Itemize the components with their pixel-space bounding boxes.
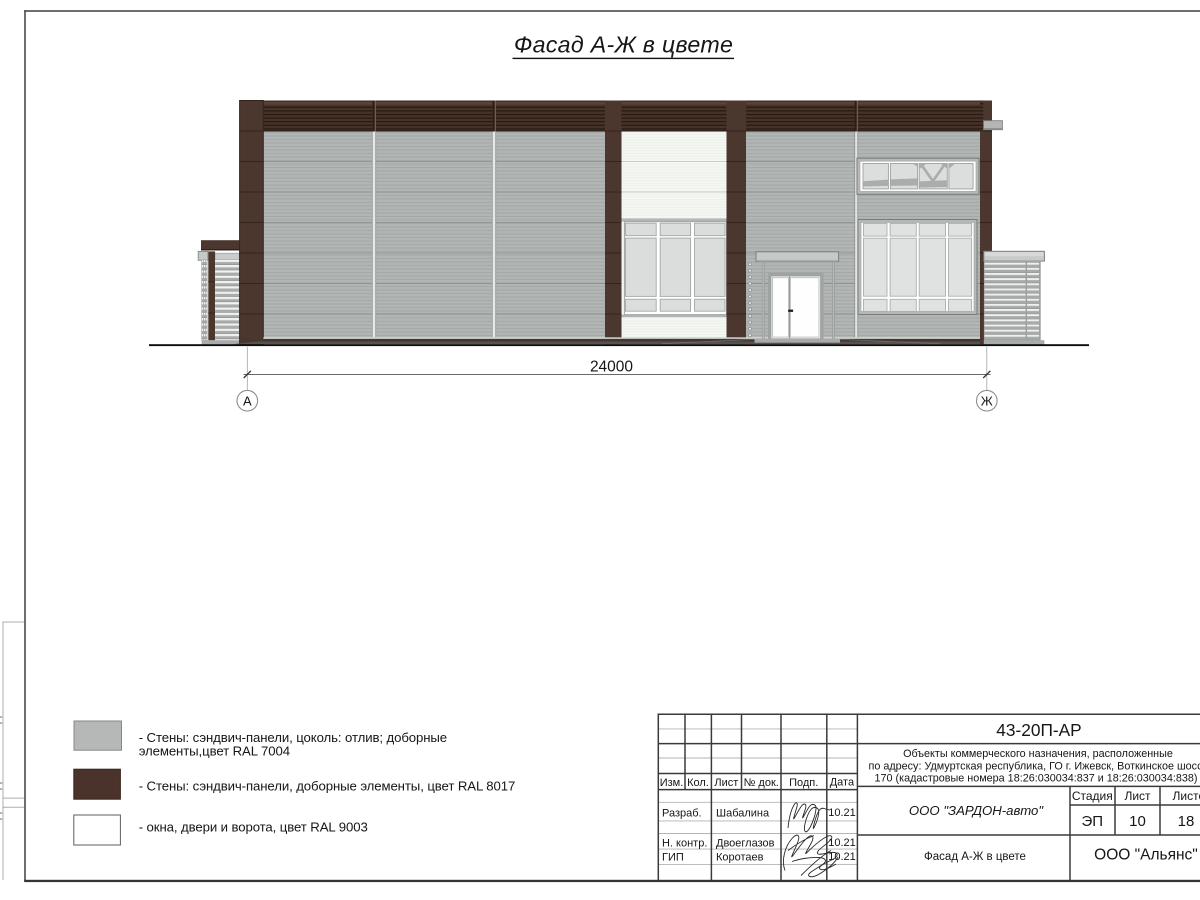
svg-text:Дата: Дата	[830, 777, 855, 789]
svg-text:- окна, двери и ворота, цвет R: - окна, двери и ворота, цвет RAL 9003	[139, 820, 368, 835]
svg-text:А: А	[243, 393, 252, 408]
svg-text:Фасад А-Ж в цвете: Фасад А-Ж в цвете	[924, 851, 1026, 863]
svg-text:43-20П-АР: 43-20П-АР	[996, 720, 1081, 740]
svg-text:элементы,цвет RAL 7004: элементы,цвет RAL 7004	[139, 744, 290, 759]
svg-text:Ж: Ж	[981, 393, 993, 408]
svg-text:ООО "ЗАРДОН-авто": ООО "ЗАРДОН-авто"	[909, 803, 1044, 818]
svg-text:ГИП: ГИП	[662, 852, 684, 864]
svg-text:ООО "Альянс": ООО "Альянс"	[1094, 847, 1198, 864]
svg-text:Изм.: Изм.	[660, 777, 684, 789]
svg-text:170 (кадастровые номера 18:26:: 170 (кадастровые номера 18:26:030034:837…	[875, 772, 1198, 784]
svg-text:Фасад А-Ж в цвете: Фасад А-Ж в цвете	[514, 32, 733, 58]
svg-text:Объекты коммерческого назначен: Объекты коммерческого назначения, распол…	[903, 748, 1173, 760]
svg-text:Шабалина: Шабалина	[716, 807, 770, 819]
svg-text:24000: 24000	[590, 359, 633, 376]
svg-text:№ док.: № док.	[744, 777, 779, 789]
svg-text:Разраб.: Разраб.	[662, 807, 702, 819]
svg-text:Кол.: Кол.	[687, 777, 709, 789]
svg-text:10.21: 10.21	[828, 807, 856, 819]
svg-text:10.21: 10.21	[828, 837, 856, 849]
svg-text:10.21: 10.21	[828, 851, 856, 863]
svg-text:Стадия: Стадия	[1072, 789, 1113, 803]
svg-text:- Стены: сэндвич-панели, добор: - Стены: сэндвич-панели, доборные элемен…	[139, 779, 516, 794]
svg-text:Лист: Лист	[714, 777, 738, 789]
svg-text:18: 18	[1178, 813, 1195, 830]
svg-text:по адресу: Удмуртская республи: по адресу: Удмуртская республика, ГО г. …	[868, 761, 1200, 773]
svg-text:Двоеглазов: Двоеглазов	[716, 837, 775, 849]
svg-text:Листов: Листов	[1173, 789, 1200, 803]
svg-text:Н. контр.: Н. контр.	[662, 838, 707, 850]
svg-text:Подп.: Подп.	[789, 777, 818, 789]
svg-text:ЭП: ЭП	[1082, 813, 1104, 830]
svg-text:10: 10	[1129, 813, 1146, 830]
svg-text:Коротаев: Коротаев	[716, 851, 764, 863]
svg-text:Лист: Лист	[1124, 789, 1151, 803]
